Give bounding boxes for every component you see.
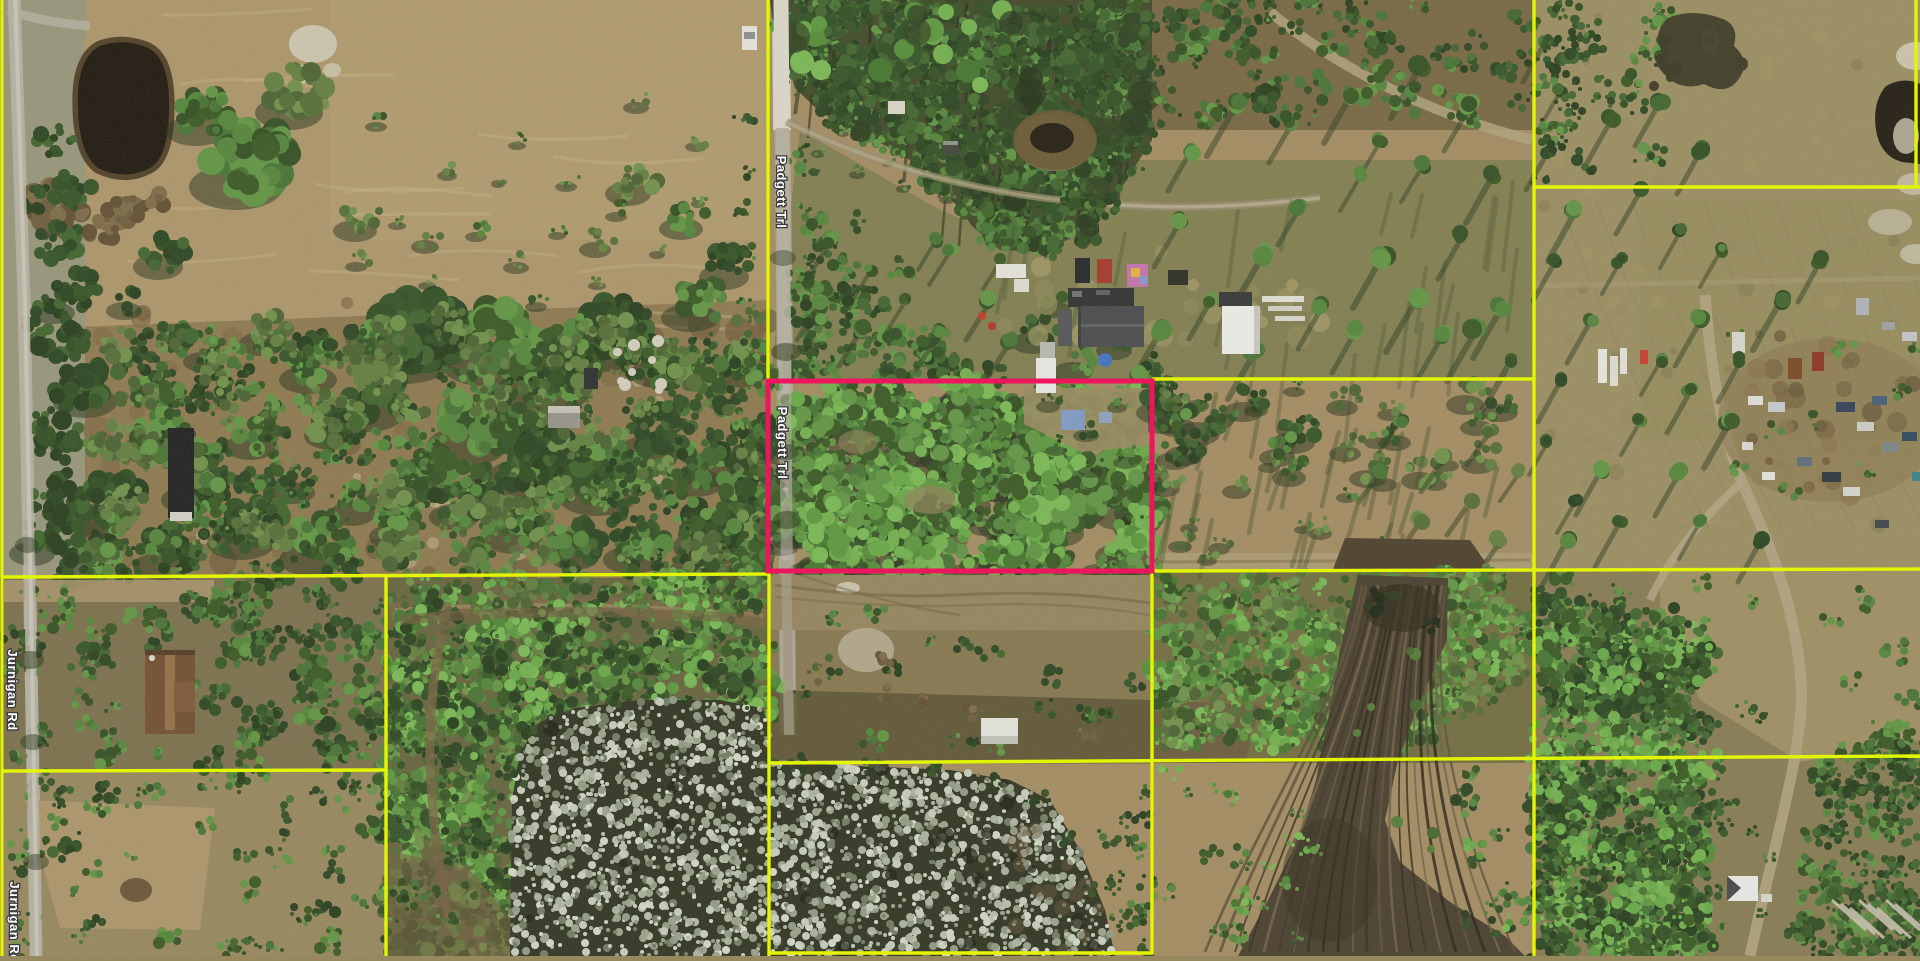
svg-text:Jurnigan Rd: Jurnigan Rd bbox=[7, 881, 22, 956]
svg-text:Padgett Trl: Padgett Trl bbox=[774, 156, 789, 229]
svg-text:Jurnigan Rd: Jurnigan Rd bbox=[5, 649, 20, 730]
svg-text:Padgett Trl: Padgett Trl bbox=[775, 407, 790, 480]
